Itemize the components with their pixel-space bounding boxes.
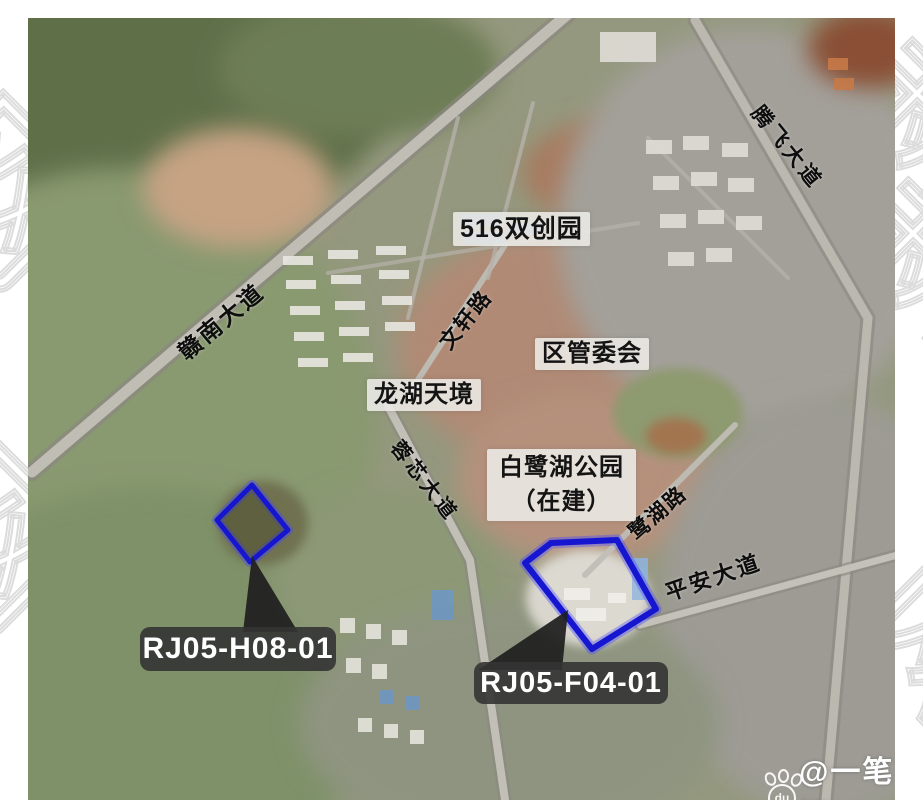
label-parcel-h08: RJ05-H08-01 [140,627,336,671]
page-background: 网 网 新 新 网 [0,0,923,800]
label-egret-lake-park-line2: （在建） [499,485,624,519]
author-watermark: du @一笔福 [763,747,895,800]
paw-pad-label: du [768,784,796,800]
label-longhu-tianjing: 龙湖天境 [367,379,481,411]
label-egret-lake-park: 白鹭湖公园 （在建） [487,449,636,521]
author-signature-text: @一笔福 [799,747,895,800]
label-parcel-f04: RJ05-F04-01 [474,662,668,704]
satellite-map: 516双创园 区管委会 龙湖天境 白鹭湖公园 （在建） RJ05-H08-01 … [28,18,895,800]
label-516-innovation-park: 516双创园 [453,212,590,246]
baidu-paw-icon: du [763,770,793,800]
label-district-admin: 区管委会 [535,338,649,370]
paw-toe-icon [778,769,789,783]
label-egret-lake-park-line1: 白鹭湖公园 [499,451,624,485]
